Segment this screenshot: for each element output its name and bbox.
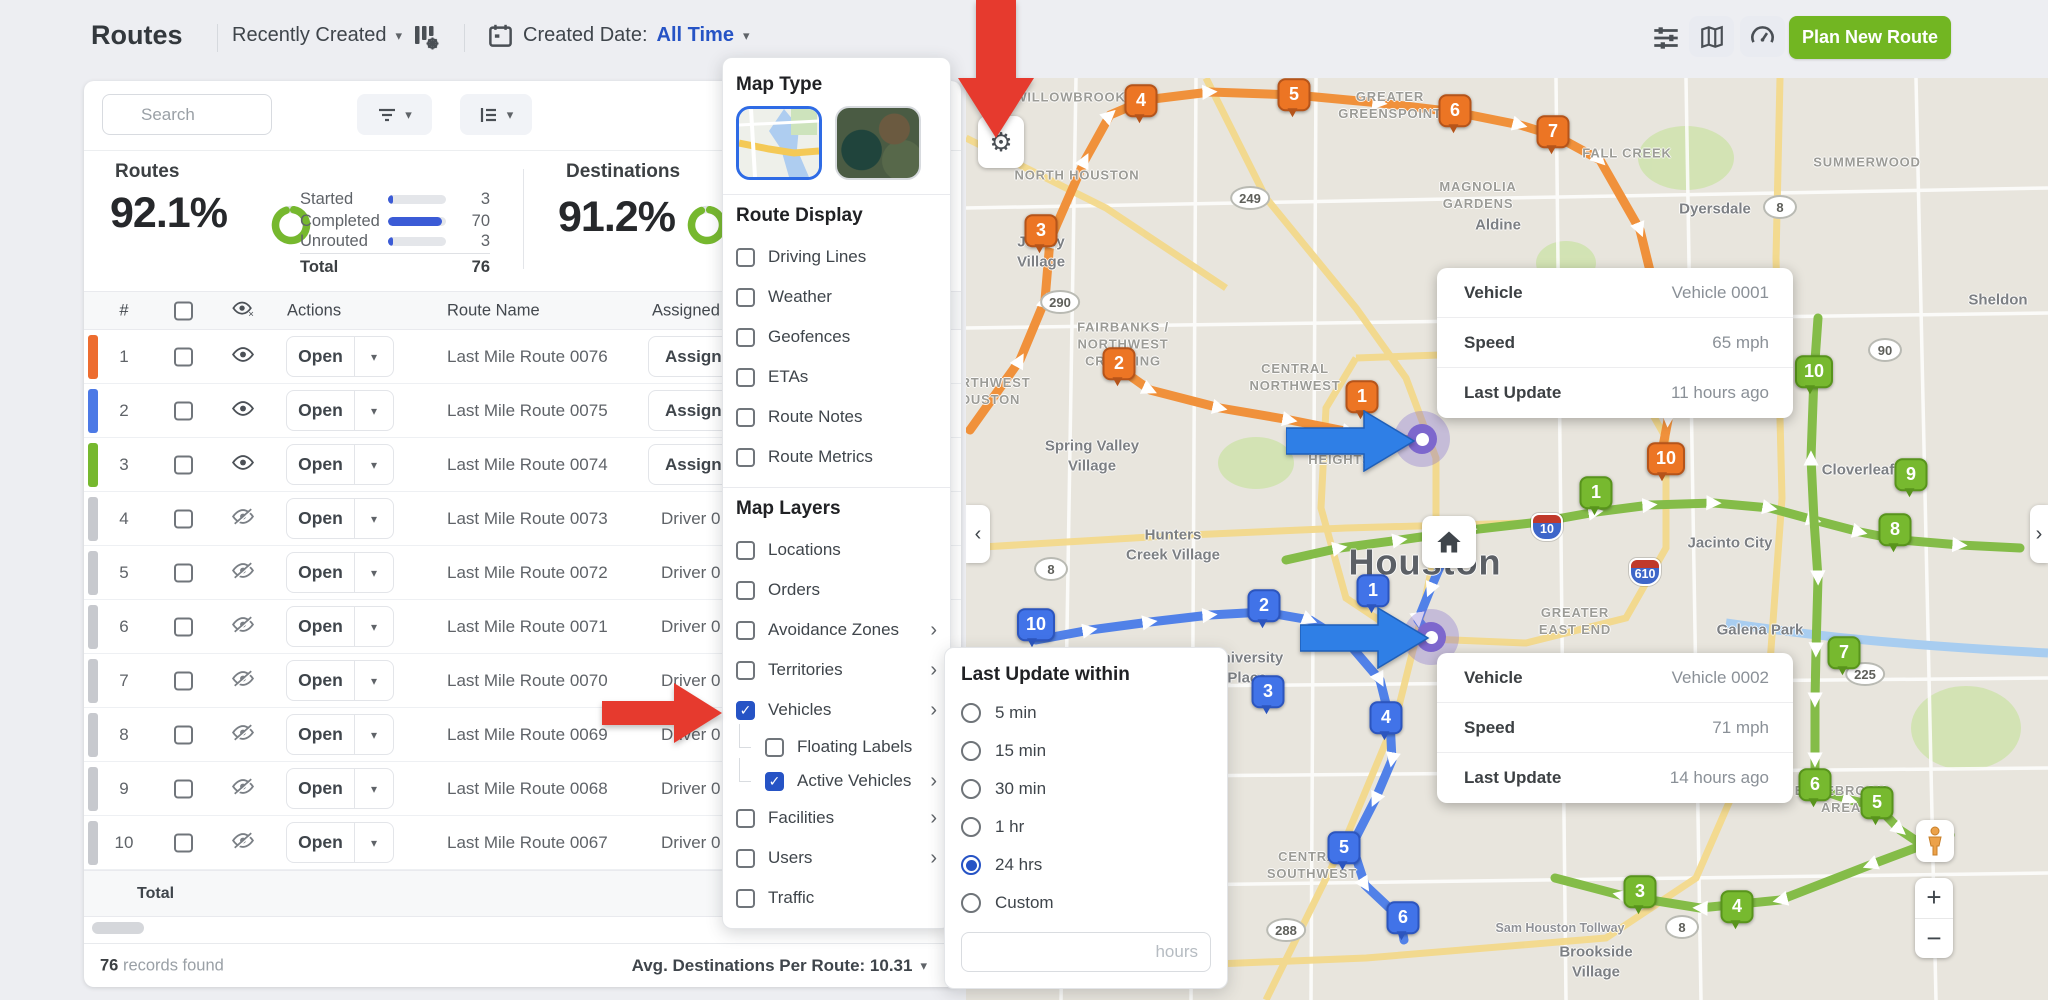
map-home-button[interactable]	[1422, 516, 1476, 568]
last-update-option-5-min[interactable]: 5 min	[961, 694, 1211, 732]
checkbox-label: Active Vehicles	[797, 771, 911, 791]
last-update-option-24-hrs[interactable]: 24 hrs	[961, 846, 1211, 884]
breakdown-bar	[388, 217, 446, 226]
row-number: 10	[112, 833, 136, 853]
eye-off-icon[interactable]	[230, 615, 256, 638]
route-display-weather[interactable]: Weather	[723, 277, 950, 317]
eye-off-icon[interactable]	[230, 777, 256, 800]
chevron-down-icon: ▾	[396, 28, 403, 44]
chevron-down-icon[interactable]: ▾	[355, 715, 393, 754]
route-name: Last Mile Route 0068	[447, 779, 608, 799]
map-stop-marker[interactable]: 10	[1647, 442, 1685, 475]
divider	[464, 24, 465, 52]
checkbox[interactable]	[736, 288, 755, 307]
row-number: 7	[112, 671, 136, 691]
vehicle-card-row: Last Update 14 hours ago	[1437, 753, 1793, 803]
chevron-down-icon[interactable]: ▾	[355, 823, 393, 862]
checkbox-label: Locations	[768, 540, 841, 560]
tune-button[interactable]	[1650, 22, 1682, 54]
chevron-right-icon: ›	[930, 619, 937, 642]
tune-icon	[1650, 22, 1682, 54]
map-stop-marker[interactable]: 5	[1861, 786, 1894, 819]
destinations-progress-ring	[687, 205, 727, 245]
chevron-down-icon[interactable]: ▾	[355, 445, 393, 484]
map-stop-marker[interactable]: 4	[1721, 890, 1754, 923]
assigned-driver: Driver 0	[661, 779, 721, 799]
column-actions: Actions	[287, 301, 341, 320]
checkbox-label: Traffic	[768, 888, 814, 908]
vehicle-card-row: Speed 71 mph	[1437, 703, 1793, 753]
group-button[interactable]: ▾	[460, 94, 532, 135]
checkbox-label: ETAs	[768, 367, 808, 387]
vehicle-card-row: Vehicle Vehicle 0002	[1437, 653, 1793, 703]
map-stop-marker[interactable]: 7	[1537, 115, 1570, 148]
route-name: Last Mile Route 0073	[447, 509, 608, 529]
map-stop-marker[interactable]: 10	[1017, 608, 1055, 641]
open-route-button[interactable]: Open ▾	[286, 606, 394, 647]
route-name: Last Mile Route 0076	[447, 347, 608, 367]
map-layer-traffic[interactable]: Traffic	[723, 878, 950, 918]
last-update-popup: Last Update within 5 min 15 min 30 min 1…	[944, 647, 1228, 989]
checkbox-label: Territories	[768, 660, 843, 680]
zoom-in-button[interactable]: +	[1915, 878, 1953, 919]
map-stop-marker[interactable]: 6	[1387, 901, 1420, 934]
route-display-etas[interactable]: ETAs	[723, 357, 950, 397]
chevron-left-icon: ‹	[975, 523, 982, 546]
last-update-option-custom[interactable]: Custom	[961, 884, 1211, 922]
destinations-percent: 91.2%	[558, 193, 675, 242]
checkbox[interactable]	[765, 738, 784, 757]
assigned-driver: Driver 0	[661, 671, 721, 691]
map-stop-marker[interactable]: 3	[1624, 875, 1657, 908]
chevron-right-icon: ›	[930, 807, 937, 830]
map-layer-orders[interactable]: Orders	[723, 570, 950, 610]
radio-label: 1 hr	[995, 817, 1024, 837]
radio-label: 24 hrs	[995, 855, 1042, 875]
route-display-geofences[interactable]: Geofences	[723, 317, 950, 357]
route-name: Last Mile Route 0072	[447, 563, 608, 583]
route-display-route-metrics[interactable]: Route Metrics	[723, 437, 950, 477]
map-settings-popup: Map Type Route Display Driving Lines Wea…	[722, 57, 951, 929]
map-stop-marker[interactable]: 1	[1357, 574, 1390, 607]
row-number: 1	[112, 347, 136, 367]
eye-off-icon[interactable]	[230, 723, 256, 746]
checkbox-label: Floating Labels	[797, 737, 912, 757]
checkbox-label: Route Metrics	[768, 447, 873, 467]
checkbox[interactable]	[736, 248, 755, 267]
radio-icon[interactable]	[961, 779, 981, 799]
checkbox-label: Users	[768, 848, 812, 868]
row-checkbox[interactable]	[174, 833, 193, 852]
open-label[interactable]: Open	[287, 391, 355, 430]
vehicle-card-value: Vehicle 0001	[1672, 283, 1769, 303]
checkbox[interactable]	[736, 328, 755, 347]
route-name: Last Mile Route 0069	[447, 725, 608, 745]
route-status-bar	[88, 605, 98, 649]
horizontal-scrollbar[interactable]	[92, 922, 144, 934]
checkbox[interactable]	[736, 809, 755, 828]
breakdown-value: 70	[446, 212, 490, 231]
radio-icon[interactable]	[961, 703, 981, 723]
breakdown-row: Unrouted 3	[300, 231, 490, 251]
search-input[interactable]	[102, 94, 272, 135]
speedometer-icon	[1749, 23, 1776, 50]
svg-text:✕: ✕	[248, 309, 254, 317]
last-update-title: Last Update within	[961, 664, 1211, 686]
vehicle-card-row: Last Update 11 hours ago	[1437, 368, 1793, 418]
map-stop-marker[interactable]: 8	[1879, 513, 1912, 546]
calendar-icon	[487, 22, 514, 49]
checkbox[interactable]	[736, 541, 755, 560]
routes-stat-label: Routes	[115, 161, 179, 183]
row-number: 5	[112, 563, 136, 583]
records-count: 76 records found	[100, 956, 224, 975]
chevron-right-icon: ›	[930, 659, 937, 682]
zoom-out-button[interactable]: −	[1915, 919, 1953, 959]
route-status-bar	[88, 497, 98, 541]
created-date-filter[interactable]: Created Date: All Time ▾	[487, 22, 749, 49]
route-name: Last Mile Route 0074	[447, 455, 608, 475]
home-icon	[1435, 529, 1463, 555]
highway-shield: 249	[1230, 186, 1270, 210]
open-label[interactable]: Open	[287, 445, 355, 484]
checkbox[interactable]	[736, 448, 755, 467]
chevron-down-icon[interactable]: ▾	[355, 553, 393, 592]
route-status-bar	[88, 389, 98, 433]
map-layer-locations[interactable]: Locations	[723, 530, 950, 570]
breakdown-label: Completed	[300, 212, 388, 231]
route-status-bar	[88, 767, 98, 811]
assigned-driver: Driver 0	[661, 725, 721, 745]
eye-icon[interactable]	[230, 453, 256, 476]
map-icon	[1699, 24, 1725, 50]
open-route-button[interactable]: Open ▾	[286, 714, 394, 755]
route-display-title: Route Display	[723, 205, 950, 227]
route-display-driving-lines[interactable]: Driving Lines	[723, 237, 950, 277]
radio-label: 30 min	[995, 779, 1046, 799]
open-route-button[interactable]: Open ▾	[286, 822, 394, 863]
row-checkbox[interactable]	[174, 347, 193, 366]
vehicle-card-value: 65 mph	[1712, 333, 1769, 353]
eye-off-icon[interactable]	[230, 507, 256, 530]
vehicle-card-label: Vehicle	[1464, 668, 1523, 688]
eye-off-icon[interactable]	[230, 831, 256, 854]
row-checkbox[interactable]	[174, 725, 193, 744]
column-index: #	[112, 301, 136, 320]
route-status-bar	[88, 443, 98, 487]
row-checkbox[interactable]	[174, 455, 193, 474]
map-layer-facilities[interactable]: Facilities ›	[723, 798, 950, 838]
open-label[interactable]: Open	[287, 823, 355, 862]
page-title: Routes	[91, 20, 183, 51]
panel-footer: 76 records found Avg. Destinations Per R…	[84, 943, 961, 987]
chevron-down-icon[interactable]: ▾	[355, 607, 393, 646]
row-checkbox[interactable]	[174, 671, 193, 690]
radio-icon[interactable]	[961, 855, 981, 875]
vehicle-card-value: 71 mph	[1712, 718, 1769, 738]
column-route-name: Route Name	[447, 301, 540, 320]
breakdown-row: Completed 70	[300, 211, 490, 231]
radio-label: 5 min	[995, 703, 1037, 723]
route-status-bar	[88, 335, 98, 379]
open-route-button[interactable]: Open ▾	[286, 552, 394, 593]
column-settings-button[interactable]	[411, 22, 441, 52]
divider	[723, 194, 950, 195]
chevron-down-icon: ▾	[920, 958, 927, 974]
route-display-route-notes[interactable]: Route Notes	[723, 397, 950, 437]
row-number: 9	[112, 779, 136, 799]
radio-label: 15 min	[995, 741, 1046, 761]
vehicle-card-row: Vehicle Vehicle 0001	[1437, 268, 1793, 318]
map-type-title: Map Type	[723, 74, 950, 96]
vehicle-card-label: Vehicle	[1464, 283, 1523, 303]
row-checkbox[interactable]	[174, 779, 193, 798]
assigned-driver: Driver 0	[661, 617, 721, 637]
map-stop-marker[interactable]: 6	[1799, 768, 1832, 801]
breakdown-value: 3	[446, 190, 490, 209]
expand-panel-tab[interactable]: ›	[2030, 505, 2048, 563]
assigned-driver: Driver 0	[661, 563, 721, 583]
checkbox[interactable]	[736, 621, 755, 640]
open-route-button[interactable]: Open ▾	[286, 498, 394, 539]
highway-shield: 290	[1040, 290, 1080, 314]
assigned-driver: Driver 0	[661, 509, 721, 529]
custom-hours-input[interactable]	[961, 932, 1211, 972]
divider	[523, 169, 524, 269]
map-type-satellite-thumbnail[interactable]	[835, 106, 921, 180]
chevron-down-icon[interactable]: ▾	[355, 661, 393, 700]
assigned-driver: Driver 0	[661, 833, 721, 853]
vehicle-card-label: Speed	[1464, 718, 1515, 738]
checkbox[interactable]	[736, 408, 755, 427]
chevron-down-icon[interactable]: ▾	[355, 769, 393, 808]
routes-total-value: 76	[472, 258, 490, 277]
breakdown-bar	[388, 237, 446, 246]
filter-button[interactable]: ▾	[357, 94, 432, 135]
map-layer-active-vehicles[interactable]: ✓ Active Vehicles ›	[752, 764, 950, 798]
open-route-button[interactable]: Open ▾	[286, 336, 394, 377]
eye-off-icon[interactable]	[230, 669, 256, 692]
map-stop-marker[interactable]: 4	[1370, 701, 1403, 734]
divider	[217, 24, 218, 52]
destinations-stat-label: Destinations	[566, 161, 680, 183]
row-checkbox[interactable]	[174, 617, 193, 636]
vehicle-location-dot[interactable]	[1394, 411, 1450, 467]
pegman-button[interactable]	[1916, 820, 1954, 862]
route-status-bar	[88, 821, 98, 865]
checkbox[interactable]: ✓	[736, 701, 755, 720]
route-name: Last Mile Route 0075	[447, 401, 608, 421]
open-route-button[interactable]: Open ▾	[286, 768, 394, 809]
avg-destinations-label: Avg. Destinations Per Route: 10.31	[632, 956, 913, 976]
row-number: 2	[112, 401, 136, 421]
vehicle-card-label: Last Update	[1464, 768, 1561, 788]
sort-dropdown-label: Recently Created	[232, 24, 387, 47]
map-layer-avoidance-zones[interactable]: Avoidance Zones ›	[723, 610, 950, 650]
route-status-bar	[88, 551, 98, 595]
checkbox[interactable]	[736, 661, 755, 680]
vehicle-card-value: Vehicle 0002	[1672, 668, 1769, 688]
eye-icon[interactable]	[230, 345, 256, 368]
top-bar: Routes Recently Created ▾ Created Date: …	[0, 0, 2048, 78]
chevron-down-icon: ▾	[405, 107, 412, 123]
radio-icon[interactable]	[961, 741, 981, 761]
open-route-button[interactable]: Open ▾	[286, 660, 394, 701]
highway-shield: 10	[1531, 513, 1563, 541]
map-layer-territories[interactable]: Territories ›	[723, 650, 950, 690]
map-stop-marker[interactable]: 9	[1895, 458, 1928, 491]
highway-shield: 90	[1868, 338, 1902, 362]
map-layers-title: Map Layers	[723, 498, 950, 520]
collapse-panel-tab[interactable]: ‹	[966, 505, 990, 563]
last-update-option-1-hr[interactable]: 1 hr	[961, 808, 1211, 846]
vehicle-card-value: 14 hours ago	[1670, 768, 1769, 788]
created-date-label: Created Date:	[523, 24, 648, 47]
map-stop-marker[interactable]: 7	[1828, 636, 1861, 669]
checkbox-label: Driving Lines	[768, 247, 866, 267]
map-layer-floating-labels[interactable]: Floating Labels	[752, 730, 950, 764]
chevron-down-icon[interactable]: ▾	[355, 391, 393, 430]
chevron-down-icon[interactable]: ▾	[355, 499, 393, 538]
checkbox[interactable]	[736, 889, 755, 908]
dashboard-button[interactable]	[1740, 16, 1785, 57]
row-number: 4	[112, 509, 136, 529]
open-label[interactable]: Open	[287, 661, 355, 700]
filter-icon	[377, 107, 397, 123]
open-label[interactable]: Open	[287, 553, 355, 592]
checkbox-label: Vehicles	[768, 700, 831, 720]
plan-new-route-button[interactable]: Plan New Route	[1789, 16, 1951, 59]
breakdown-bar	[388, 195, 446, 204]
routes-total: Total 76	[300, 253, 490, 277]
vehicle-card-value: 11 hours ago	[1671, 383, 1769, 403]
divider	[723, 487, 950, 488]
routes-percent: 92.1%	[110, 189, 227, 238]
route-name: Last Mile Route 0067	[447, 833, 608, 853]
open-label[interactable]: Open	[287, 715, 355, 754]
map-stop-marker[interactable]: 5	[1278, 78, 1311, 111]
open-label[interactable]: Open	[287, 337, 355, 376]
open-label[interactable]: Open	[287, 607, 355, 646]
route-name: Last Mile Route 0070	[447, 671, 608, 691]
map-view-button[interactable]	[1689, 16, 1734, 57]
route-status-bar	[88, 713, 98, 757]
last-update-option-30-min[interactable]: 30 min	[961, 770, 1211, 808]
zoom-control: + −	[1915, 878, 1953, 958]
open-route-button[interactable]: Open ▾	[286, 444, 394, 485]
chevron-down-icon[interactable]: ▾	[355, 337, 393, 376]
radio-icon[interactable]	[961, 893, 981, 913]
highway-shield: 288	[1266, 918, 1306, 942]
row-checkbox[interactable]	[174, 509, 193, 528]
checkbox-label: Geofences	[768, 327, 850, 347]
checkbox-label: Facilities	[768, 808, 834, 828]
open-label[interactable]: Open	[287, 499, 355, 538]
breakdown-label: Started	[300, 190, 388, 209]
checkbox-label: Orders	[768, 580, 820, 600]
sort-dropdown[interactable]: Recently Created ▾	[232, 24, 402, 47]
checkbox[interactable]	[736, 581, 755, 600]
checkbox[interactable]: ✓	[765, 772, 784, 791]
vehicle-info-card: Vehicle Vehicle 0002 Speed 71 mph Last U…	[1437, 653, 1793, 803]
map-stop-marker[interactable]: 1	[1580, 476, 1613, 509]
map-stop-marker[interactable]: 2	[1103, 347, 1136, 380]
chevron-right-icon: ›	[2036, 523, 2043, 546]
columns-gear-icon	[411, 22, 441, 52]
map-stop-marker[interactable]: 2	[1248, 589, 1281, 622]
route-status-bar	[88, 659, 98, 703]
roadmap-thumb-art	[739, 109, 819, 177]
routes-total-label: Total	[300, 258, 338, 277]
records-count-value: 76	[100, 956, 118, 974]
avg-destinations-dropdown[interactable]: Avg. Destinations Per Route: 10.31 ▾	[632, 956, 927, 976]
checkbox-label: Avoidance Zones	[768, 620, 899, 640]
list-group-icon	[479, 106, 499, 124]
breakdown-value: 3	[446, 232, 490, 251]
highway-shield: 8	[1034, 557, 1068, 581]
checkbox-label: Route Notes	[768, 407, 863, 427]
row-checkbox[interactable]	[174, 401, 193, 420]
map-stop-marker[interactable]: 10	[1795, 355, 1833, 388]
chevron-right-icon: ›	[930, 847, 937, 870]
column-assigned: Assigned	[652, 301, 720, 320]
open-label[interactable]: Open	[287, 769, 355, 808]
chevron-down-icon: ▾	[743, 28, 750, 44]
highway-shield: 8	[1665, 915, 1699, 939]
radio-label: Custom	[995, 893, 1054, 913]
created-date-value: All Time	[657, 24, 734, 47]
checkbox[interactable]	[736, 849, 755, 868]
checkbox[interactable]	[736, 368, 755, 387]
row-number: 8	[112, 725, 136, 745]
vehicle-card-label: Speed	[1464, 333, 1515, 353]
vehicle-card-row: Speed 65 mph	[1437, 318, 1793, 368]
map-settings-gear-button[interactable]: ⚙	[978, 116, 1024, 168]
select-all-checkbox[interactable]	[174, 301, 193, 320]
breakdown-row: Started 3	[300, 189, 490, 209]
open-route-button[interactable]: Open ▾	[286, 390, 394, 431]
map-stop-marker[interactable]: 5	[1328, 831, 1361, 864]
breakdown-label: Unrouted	[300, 232, 388, 251]
last-update-option-15-min[interactable]: 15 min	[961, 732, 1211, 770]
radio-icon[interactable]	[961, 817, 981, 837]
highway-shield: 8	[1763, 195, 1797, 219]
map-stop-marker[interactable]: 6	[1439, 94, 1472, 127]
map-stop-marker[interactable]: 3	[1025, 214, 1058, 247]
chevron-right-icon: ›	[930, 770, 937, 793]
map-type-roadmap-thumbnail[interactable]	[736, 106, 822, 180]
records-count-text: records found	[118, 956, 223, 974]
route-name: Last Mile Route 0071	[447, 617, 608, 637]
visibility-column-icon[interactable]: ✕	[230, 299, 256, 322]
table-total-label: Total	[137, 885, 174, 903]
eye-icon[interactable]	[230, 399, 256, 422]
row-checkbox[interactable]	[174, 563, 193, 582]
checkbox-label: Weather	[768, 287, 832, 307]
eye-off-icon[interactable]	[230, 561, 256, 584]
map-stop-marker[interactable]: 4	[1125, 84, 1158, 117]
row-number: 6	[112, 617, 136, 637]
map-stop-marker[interactable]: 1	[1346, 380, 1379, 413]
chevron-right-icon: ›	[930, 699, 937, 722]
vehicle-info-card: Vehicle Vehicle 0001 Speed 65 mph Last U…	[1437, 268, 1793, 418]
pegman-icon	[1925, 826, 1945, 856]
map-layer-vehicles[interactable]: ✓ Vehicles ›	[723, 690, 950, 730]
map-stop-marker[interactable]: 3	[1252, 675, 1285, 708]
row-number: 3	[112, 455, 136, 475]
map-layer-users[interactable]: Users ›	[723, 838, 950, 878]
vehicle-card-label: Last Update	[1464, 383, 1561, 403]
